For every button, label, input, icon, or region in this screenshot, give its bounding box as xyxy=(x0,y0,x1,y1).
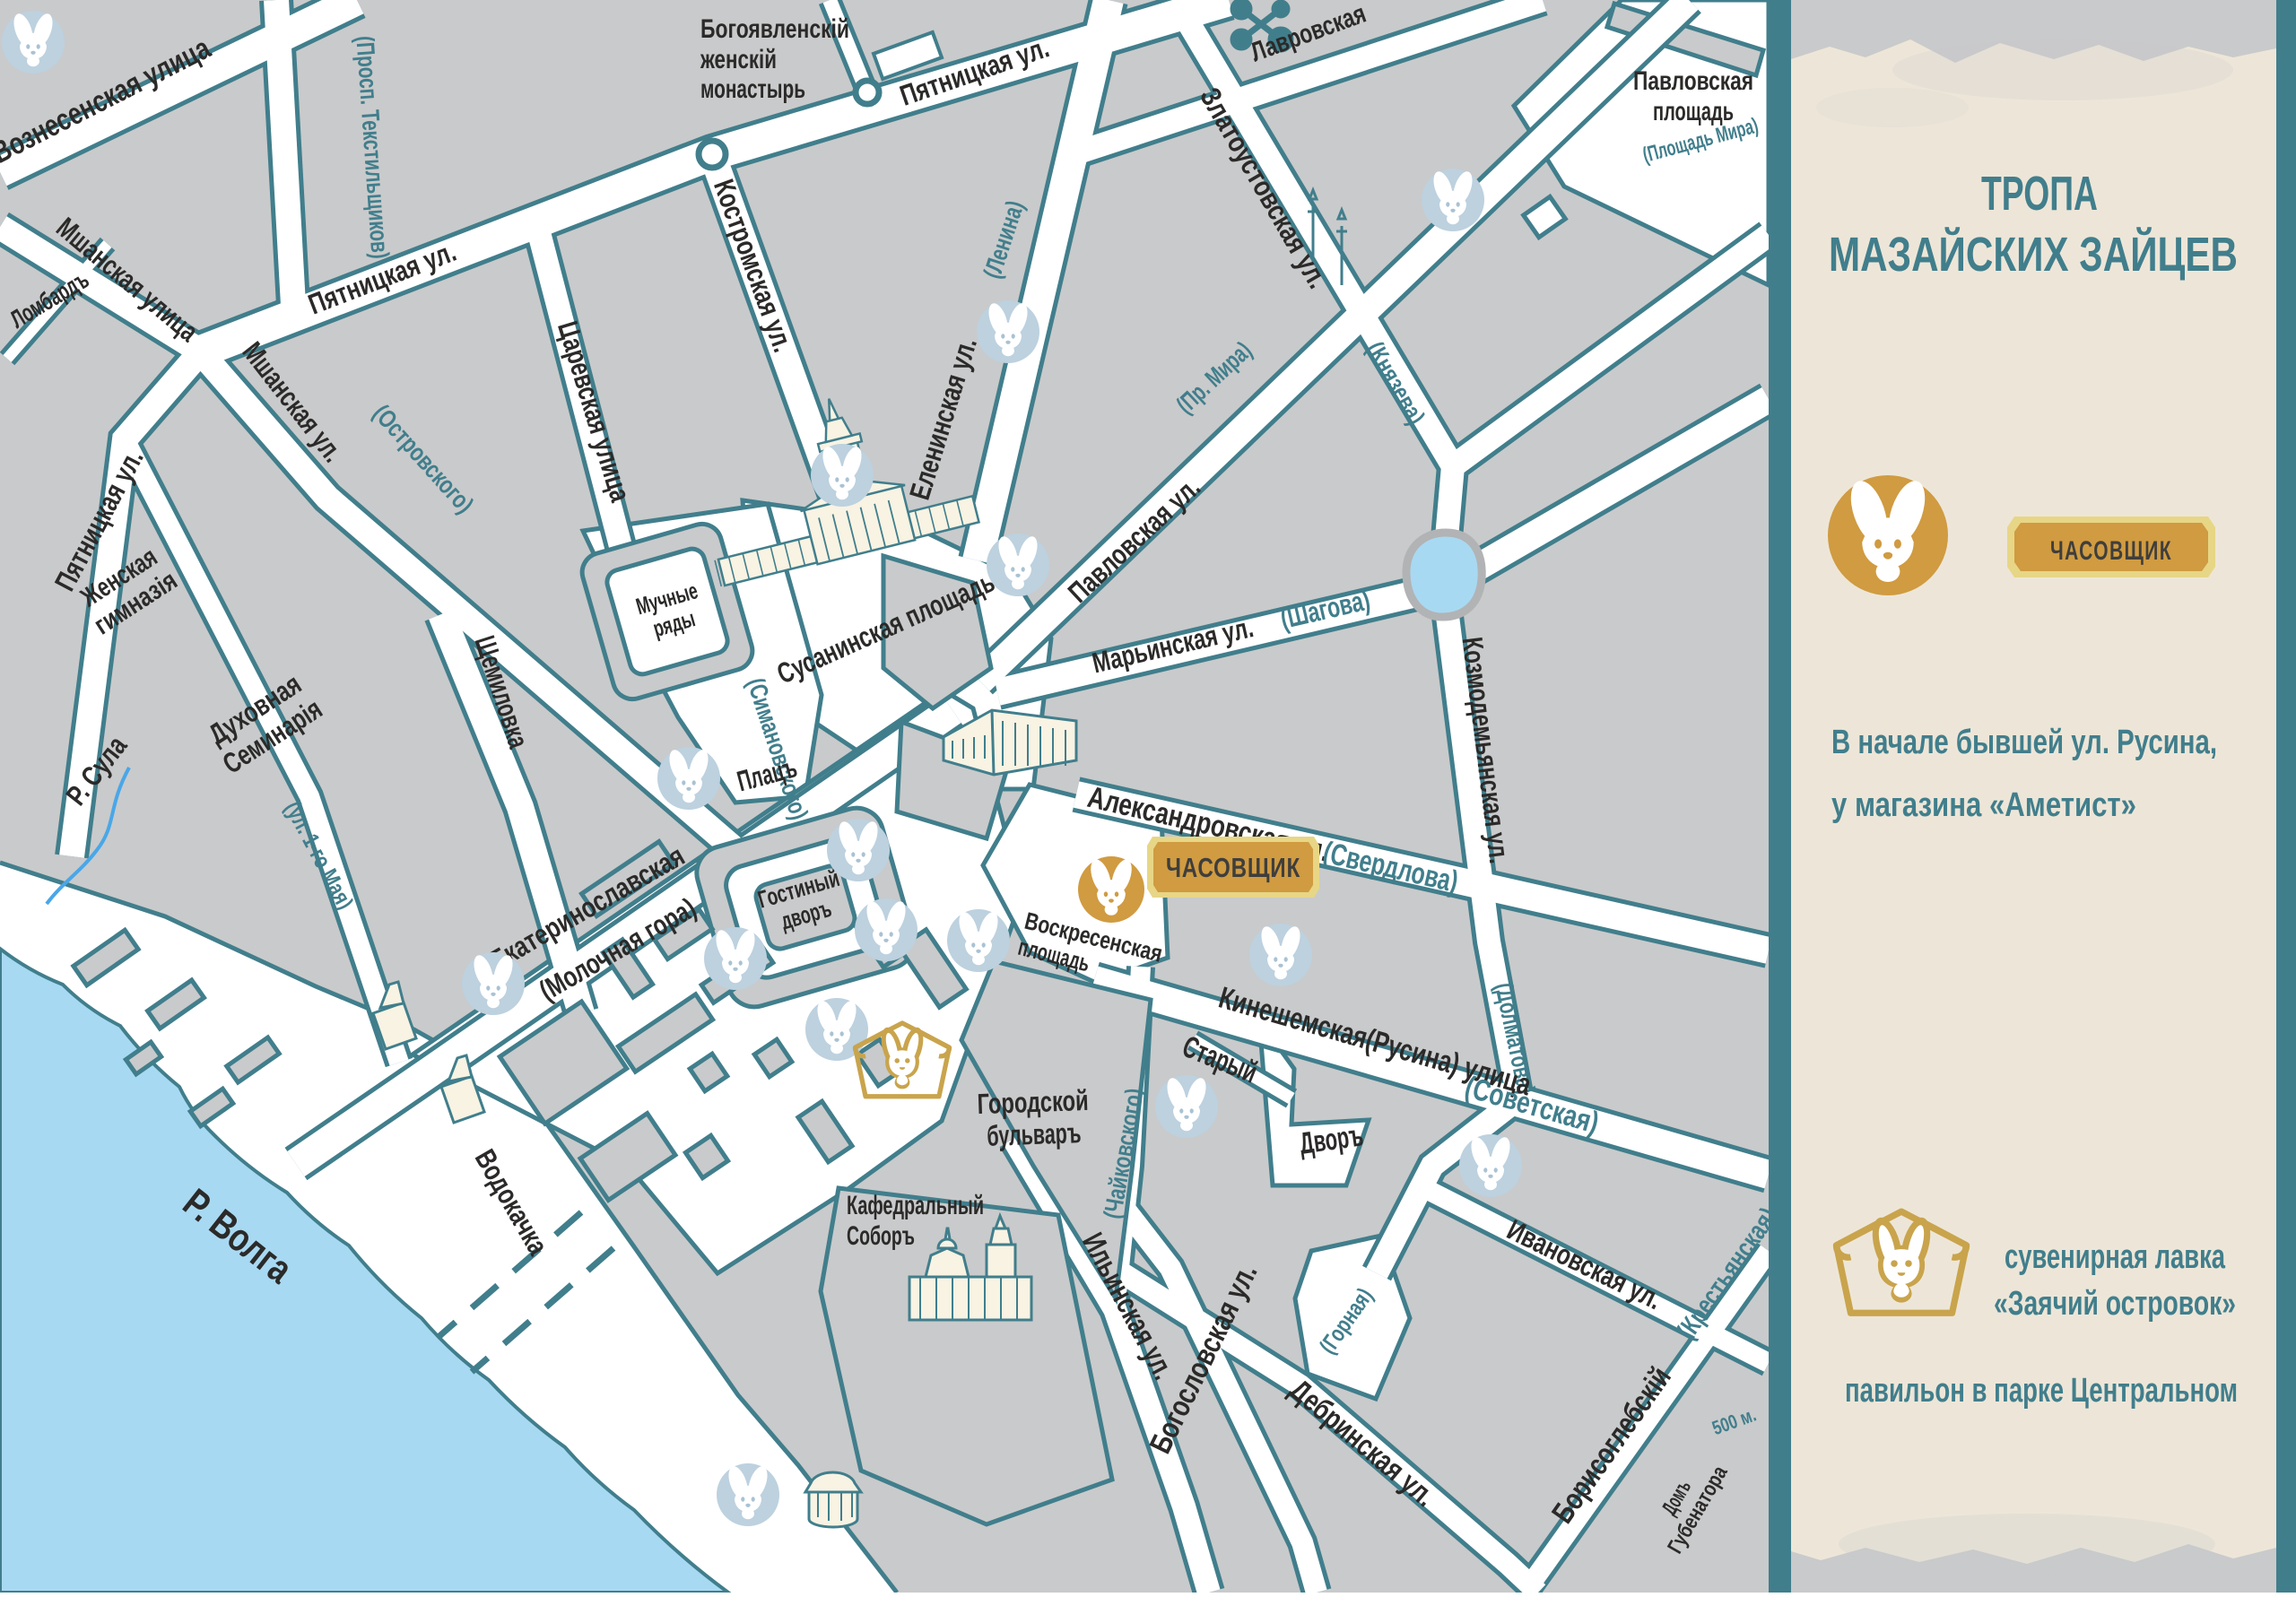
svg-text:сувенирная лавка: сувенирная лавка xyxy=(2005,1238,2226,1276)
svg-text:ТРОПА: ТРОПА xyxy=(1981,167,2098,221)
svg-text:бульваръ: бульваръ xyxy=(987,1116,1082,1152)
svg-text:МАЗАЙСКИХ ЗАЙЦЕВ: МАЗАЙСКИХ ЗАЙЦЕВ xyxy=(1829,227,2238,282)
svg-text:«Заячий островок»: «Заячий островок» xyxy=(1994,1285,2236,1323)
svg-text:женскій: женскій xyxy=(700,45,777,74)
svg-text:Соборъ: Соборъ xyxy=(847,1221,915,1251)
svg-text:монастырь: монастырь xyxy=(700,74,805,104)
svg-text:Городской: Городской xyxy=(977,1084,1089,1120)
svg-text:В начале бывшей ул. Русина,: В начале бывшей ул. Русина, xyxy=(1831,724,2217,761)
svg-text:Богоявленскій: Богоявленскій xyxy=(700,14,849,44)
svg-text:Павловская: Павловская xyxy=(1633,66,1753,96)
svg-text:у магазина «Аметист»: у магазина «Аметист» xyxy=(1831,786,2136,824)
svg-text:ЧАСОВЩИК: ЧАСОВЩИК xyxy=(2050,536,2172,566)
svg-text:Кафедральный: Кафедральный xyxy=(847,1191,984,1220)
svg-text:ЧАСОВЩИК: ЧАСОВЩИК xyxy=(1166,852,1300,883)
svg-text:павильон в парке Центральном: павильон в парке Центральном xyxy=(1845,1372,2238,1410)
svg-text:площадь: площадь xyxy=(1653,97,1734,126)
